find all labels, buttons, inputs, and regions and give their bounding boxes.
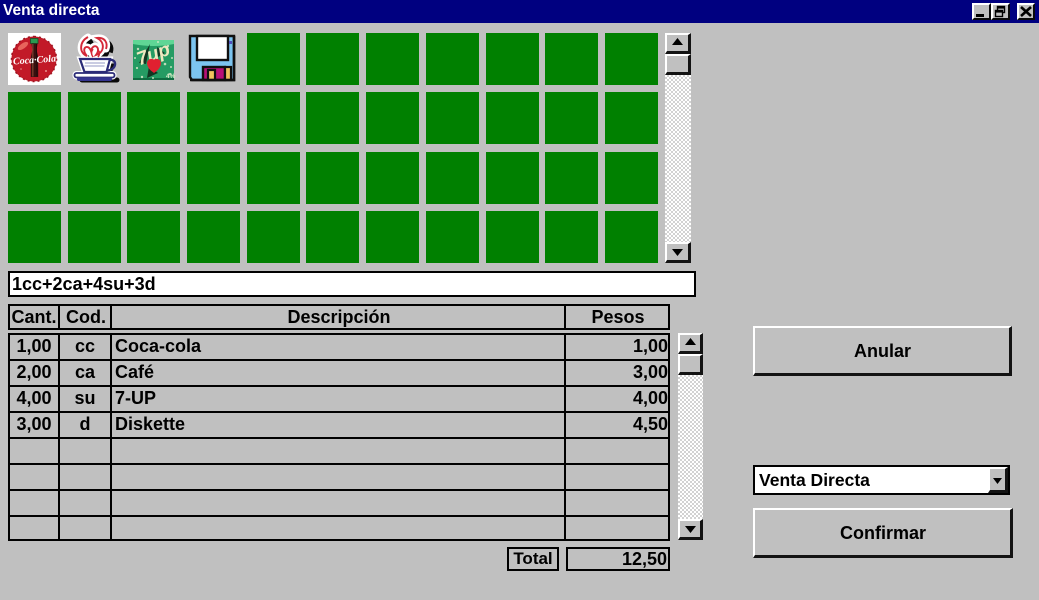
svg-text:4%: 4% (166, 73, 176, 80)
